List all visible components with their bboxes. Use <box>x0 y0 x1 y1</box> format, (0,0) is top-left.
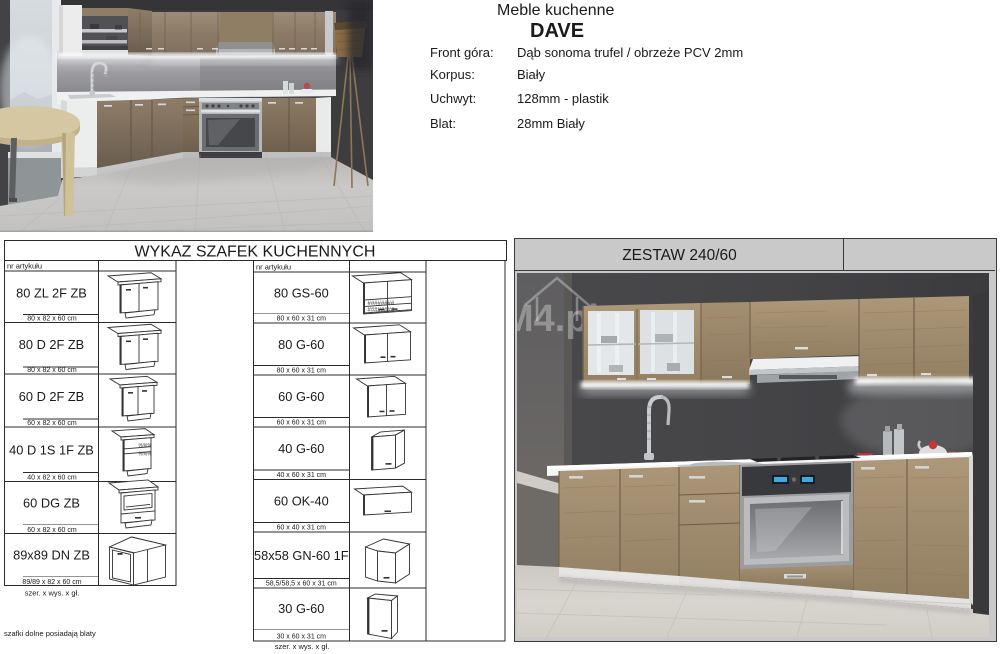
svg-text:60 x 82 x 60 cm: 60 x 82 x 60 cm <box>27 420 77 427</box>
svg-text:szafki dolne posiadają blaty: szafki dolne posiadają blaty <box>4 629 96 638</box>
svg-text:80 x 60 x 31 cm: 80 x 60 x 31 cm <box>277 316 327 323</box>
svg-text:58,5/58,5 x 60 x 31 cm: 58,5/58,5 x 60 x 31 cm <box>266 580 337 587</box>
svg-text:60 x 60 x 31 cm: 60 x 60 x 31 cm <box>277 420 327 427</box>
svg-text:58x58 GN-60 1F: 58x58 GN-60 1F <box>254 548 349 563</box>
svg-text:80 x 60 x 31 cm: 80 x 60 x 31 cm <box>277 368 327 375</box>
svg-text:########: ######## <box>368 308 395 314</box>
svg-text:WYKAZ SZAFEK KUCHENNYCH: WYKAZ SZAFEK KUCHENNYCH <box>135 244 376 261</box>
svg-text:szer. x wys. x gł.: szer. x wys. x gł. <box>275 642 330 651</box>
svg-text:30 x 60 x 31 cm: 30 x 60 x 31 cm <box>277 633 327 640</box>
svg-text:89x89 DN ZB: 89x89 DN ZB <box>13 548 90 563</box>
svg-text:szer. x wys. x gł.: szer. x wys. x gł. <box>25 589 80 598</box>
svg-text:80 x 82 x 60 cm: 80 x 82 x 60 cm <box>27 367 77 374</box>
svg-text:60 G-60: 60 G-60 <box>278 389 324 404</box>
svg-text:nr artykułu: nr artykułu <box>7 262 42 271</box>
svg-text:60 x 82 x 60 cm: 60 x 82 x 60 cm <box>27 527 77 534</box>
svg-text:60 D 2F ZB: 60 D 2F ZB <box>19 389 84 404</box>
svg-text:%%%: %%% <box>138 452 152 458</box>
svg-text:40 G-60: 40 G-60 <box>278 441 324 456</box>
svg-text:nr artykułu: nr artykułu <box>256 263 291 272</box>
svg-text:80 G-60: 80 G-60 <box>278 337 324 352</box>
svg-text:%%%: %%% <box>138 443 152 449</box>
svg-text:80 D 2F ZB: 80 D 2F ZB <box>19 337 84 352</box>
svg-text:80 GS-60: 80 GS-60 <box>274 286 329 301</box>
svg-text:60 DG ZB: 60 DG ZB <box>23 496 80 511</box>
svg-text:60 OK-40: 60 OK-40 <box>274 494 329 509</box>
svg-text:40 x 60 x 31 cm: 40 x 60 x 31 cm <box>277 472 327 479</box>
svg-text:########: ######## <box>368 301 395 307</box>
svg-text:30 G-60: 30 G-60 <box>278 601 324 616</box>
svg-text:89/89 x 82 x 60 cm: 89/89 x 82 x 60 cm <box>22 579 81 586</box>
svg-text:40 x 82 x 60 cm: 40 x 82 x 60 cm <box>27 475 77 482</box>
svg-text:80 ZL 2F ZB: 80 ZL 2F ZB <box>16 285 87 300</box>
svg-text:40 D 1S 1F ZB: 40 D 1S 1F ZB <box>9 442 94 457</box>
svg-text:60 x 40 x 31 cm: 60 x 40 x 31 cm <box>277 525 327 532</box>
svg-text:80 x 82 x 60 cm: 80 x 82 x 60 cm <box>27 316 77 323</box>
